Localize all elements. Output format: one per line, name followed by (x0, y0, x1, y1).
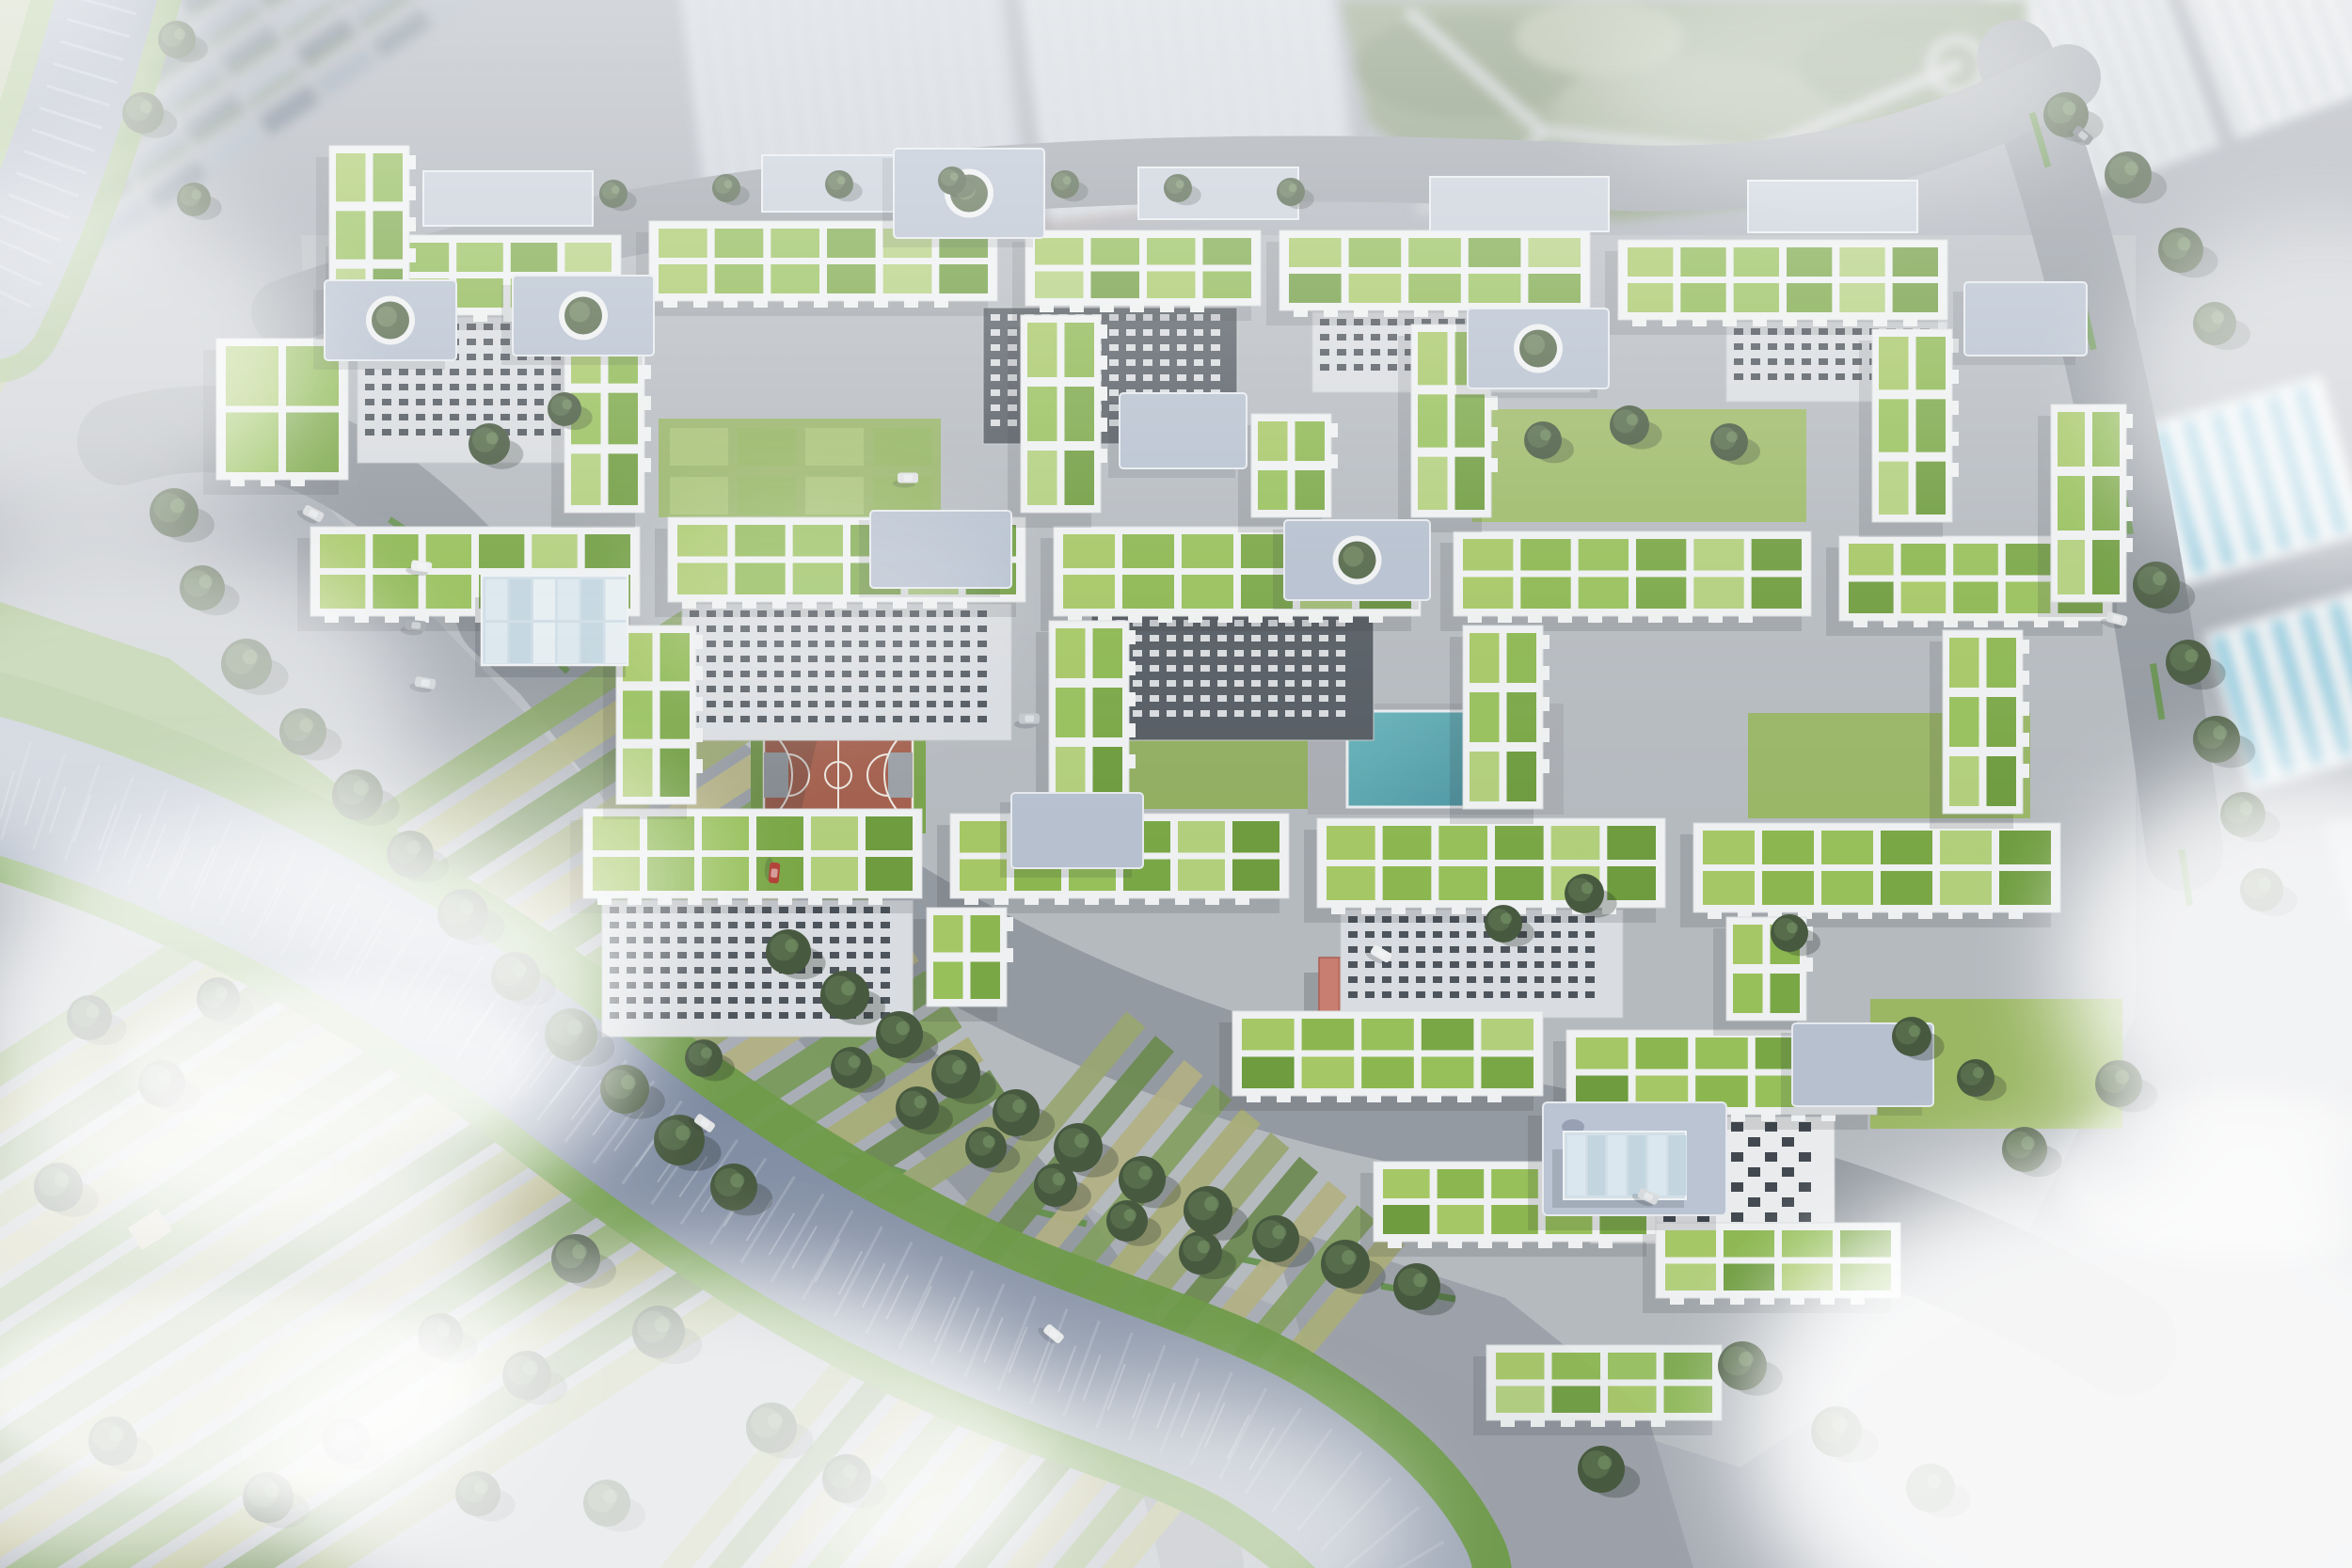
aerial-site-rendering (0, 0, 2352, 1568)
top-haze (0, 0, 2352, 1568)
scene-svg (0, 0, 2352, 1568)
